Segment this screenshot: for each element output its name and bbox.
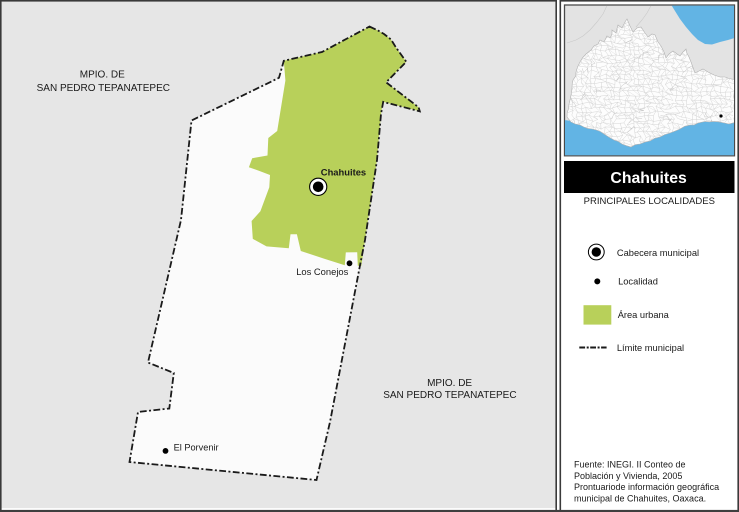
svg-text:Fuente: INEGI. II Conteo de: Fuente: INEGI. II Conteo de xyxy=(574,460,686,470)
svg-text:municipal de Chahuites, Oaxaca: municipal de Chahuites, Oaxaca. xyxy=(574,493,706,503)
svg-text:Localidad: Localidad xyxy=(618,277,658,287)
svg-text:Límite municipal: Límite municipal xyxy=(617,343,684,353)
svg-text:MPIO. DE: MPIO. DE xyxy=(427,378,472,389)
svg-text:Área urbana: Área urbana xyxy=(618,310,670,320)
svg-text:Cabecera municipal: Cabecera municipal xyxy=(617,248,699,258)
svg-text:SAN PEDRO TEPANATEPEC: SAN PEDRO TEPANATEPEC xyxy=(383,390,516,401)
svg-text:Población y Vivienda, 2005: Población y Vivienda, 2005 xyxy=(574,471,682,481)
svg-text:Chahuites: Chahuites xyxy=(321,166,366,177)
svg-text:SAN PEDRO TEPANATEPEC: SAN PEDRO TEPANATEPEC xyxy=(37,83,170,94)
svg-text:Prontuariode información geogr: Prontuariode información geográfica xyxy=(574,482,719,492)
svg-text:PRINCIPALES LOCALIDADES: PRINCIPALES LOCALIDADES xyxy=(584,196,715,207)
svg-text:Los Conejos: Los Conejos xyxy=(296,266,348,277)
svg-text:El Porvenir: El Porvenir xyxy=(174,442,219,452)
svg-text:MPIO. DE: MPIO. DE xyxy=(80,70,125,81)
svg-text:Chahuites: Chahuites xyxy=(610,170,687,187)
